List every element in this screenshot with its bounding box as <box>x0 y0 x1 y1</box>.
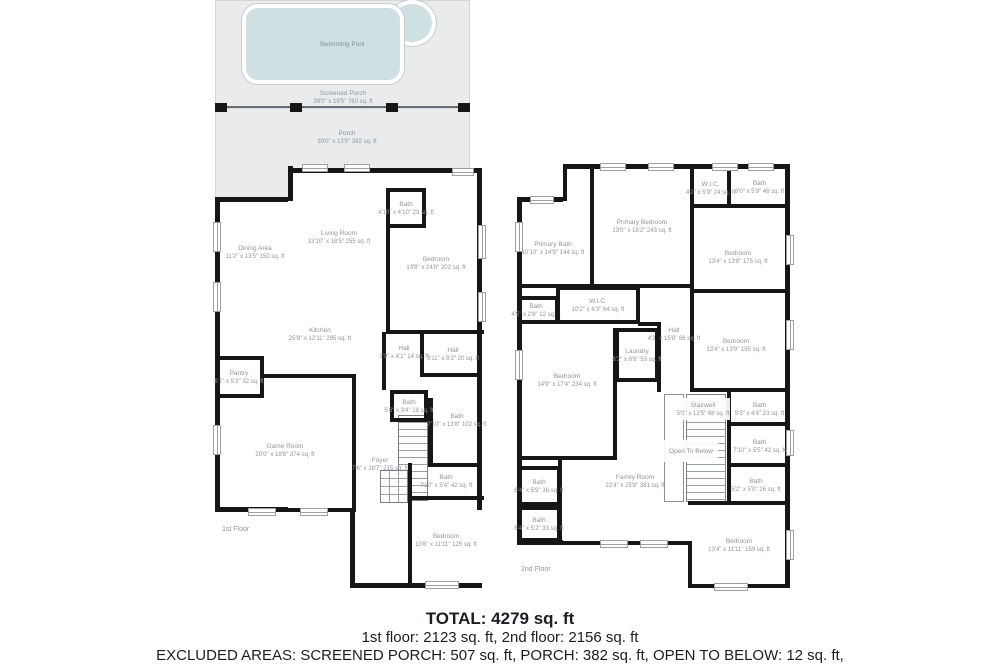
room-bath: Bath7'10" x 5'5" 42 sq. ft <box>731 428 788 464</box>
window <box>248 508 276 516</box>
room-bath: Bath4'5" x 2'8" 12 sq. ft <box>517 296 559 324</box>
window <box>530 196 554 204</box>
room-dims-label: 7'10" x 5'4" 42 sq. ft <box>420 482 473 490</box>
room-dims-label: 8'0" x 5'9" 46 sq. ft <box>735 188 784 196</box>
room-dims-label: 7'10" x 5'5" 42 sq. ft <box>733 447 786 455</box>
room-name-label: Primary Bedroom <box>617 218 668 227</box>
screened-porch-label: Screened Porch 39'0" x 19'5" 760 sq. ft <box>293 86 393 108</box>
room-dims-label: 4'2" x 5'9" 24 sq. ft <box>686 189 735 197</box>
porch-post <box>215 103 227 112</box>
room-bedroom: Bedroom13'4" x 13'9" 185 sq. ft <box>690 297 782 393</box>
wall-segment <box>563 164 567 201</box>
room-dims-label: 3'9" x 4'1" 14 sq. ft <box>379 353 428 361</box>
room-name-label: Game Room <box>267 442 304 451</box>
room-dims-label: 13'0" x 16'2" 243 sq. ft <box>612 227 671 235</box>
room-family-room: Family Room22'4" x 25'8" 381 sq. ft <box>572 424 698 538</box>
room-stairwell: Stairwell5'0" x 13'5" 68 sq. ft <box>676 398 730 420</box>
room-name-label: W.I.C. <box>589 297 607 306</box>
room-bedroom: Bedroom10'6" x 11'11" 125 sq. ft <box>412 500 480 580</box>
window <box>478 292 486 322</box>
porch-name: Porch <box>339 129 356 138</box>
room-bath: Bath6'4" x 5'2" 33 sq. ft <box>517 506 561 542</box>
room-name-label: Foyer <box>372 456 389 465</box>
window <box>452 168 474 176</box>
room-hall: Hall3'9" x 4'1" 14 sq. ft <box>386 332 422 372</box>
room-name-label: Laundry <box>625 347 649 356</box>
room-hall: Hall3'11" x 5'2" 20 sq. ft <box>424 332 482 376</box>
porch-label: Porch 39'0" x 13'5" 382 sq. ft <box>297 126 397 148</box>
room-dims-label: 5'3" x 4'4" 23 sq. ft <box>735 410 784 418</box>
window <box>786 320 794 350</box>
room-bath: Bath7'10" x 5'4" 42 sq. ft <box>412 466 480 496</box>
room-name-label: W.I.C. <box>702 180 720 189</box>
room-dims-label: 13'4" x 13'9" 175 sq. ft <box>708 258 767 266</box>
room-dims-label: 4'5" x 2'8" 12 sq. ft <box>511 311 560 319</box>
room-bedroom: Bedroom13'4" x 13'9" 175 sq. ft <box>690 214 786 300</box>
first-floor-caption: 1st Floor <box>222 526 249 533</box>
window <box>213 282 221 312</box>
room-dims-label: 5'6" x 3'4" 18 sq. ft <box>384 407 433 415</box>
room-name-label: Bedroom <box>723 337 749 346</box>
room-dims-label: 14'9" x 17'4" 234 sq. ft <box>537 381 596 389</box>
room-dims-label: 22'4" x 25'8" 381 sq. ft <box>605 482 664 490</box>
room-hall: Hall4'3" x 15'8" 66 sq. ft <box>657 316 691 352</box>
room-name-label: Bath <box>450 412 463 421</box>
room-living-room: Living Room13'10" x 18'5" 255 sq. ft <box>293 172 385 302</box>
room-dims-label: 13'4" x 11'11" 159 sq. ft <box>708 546 770 554</box>
room-bedroom: Bedroom13'4" x 11'11" 159 sq. ft <box>690 505 788 585</box>
room-name-label: Bedroom <box>433 532 459 541</box>
room-dims-label: 25'8" x 12'11" 295 sq. ft <box>289 335 351 343</box>
room-name-label: Bedroom <box>423 255 449 264</box>
window <box>640 540 668 548</box>
room-name-label: Stairwell <box>691 401 716 410</box>
room-name-label: Bedroom <box>554 372 580 381</box>
window <box>425 581 459 589</box>
room-w-i-c: W.I.C.10'2" x 6'3" 64 sq. ft <box>556 286 640 324</box>
room-dims-label: 3'11" x 5'2" 20 sq. ft <box>427 355 479 363</box>
room-pantry: Pantry6'1" x 5'3" 32 sq. ft <box>218 356 264 398</box>
window <box>478 225 486 259</box>
room-name-label: Bath <box>402 398 415 407</box>
room-name-label: Bath <box>749 477 762 486</box>
room-dims-label: 10'10" x 14'9" 144 sq. ft <box>522 249 585 257</box>
window <box>302 164 328 172</box>
room-name-label: Living Room <box>321 229 357 238</box>
room-name-label: Bath <box>753 438 766 447</box>
porch-post <box>458 103 470 112</box>
summary-total: TOTAL: 4279 sq. ft <box>0 608 1000 629</box>
room-dims-label: 6'4" x 5'9" 36 sq. ft <box>514 487 563 495</box>
window <box>515 350 523 380</box>
room-bath: Bath6'4" x 5'9" 36 sq. ft <box>517 466 561 506</box>
room-dims-label: 7'10" x 13'8" 102 sq. ft <box>427 421 486 429</box>
room-name-label: Dining Area <box>238 244 272 253</box>
room-name-label: Primary Bath <box>534 240 572 249</box>
room-name-label: Kitchen <box>309 326 331 335</box>
room-dims-label: 10'6" x 11'11" 125 sq. ft <box>415 541 477 549</box>
room-bath: Bath5'3" x 4'4" 23 sq. ft <box>731 394 788 424</box>
room-name-label: Bath <box>532 478 545 487</box>
room-name-label: Bath <box>399 200 412 209</box>
summary-excluded-1: EXCLUDED AREAS: SCREENED PORCH: 507 sq. … <box>0 647 1000 665</box>
screened-porch-dims: 39'0" x 19'5" 760 sq. ft <box>313 98 372 106</box>
room-bedroom: Bedroom13'8" x 24'8" 202 sq. ft <box>390 215 482 311</box>
room-name-label: Bath <box>753 401 766 410</box>
room-dims-label: 13'4" x 13'9" 185 sq. ft <box>706 346 765 354</box>
room-name-label: Hall <box>447 346 458 355</box>
area-summary: TOTAL: 4279 sq. ft 1st floor: 2123 sq. f… <box>0 608 1000 667</box>
room-name-label: Bath <box>439 473 452 482</box>
room-laundry: Laundry6'2" x 8'6" 53 sq. ft <box>615 328 659 382</box>
room-name-label: Bath <box>529 302 542 311</box>
room-dims-label: 6'1" x 5'3" 32 sq. ft <box>214 378 263 386</box>
window <box>748 163 774 171</box>
room-dims-label: 20'0" x 18'8" 374 sq. ft <box>255 451 314 459</box>
window <box>600 540 628 548</box>
room-name-label: Pantry <box>230 369 249 378</box>
room-dims-label: 6'2" x 8'6" 53 sq. ft <box>612 356 661 364</box>
window <box>213 222 221 252</box>
room-name-label: Family Room <box>616 473 654 482</box>
window <box>515 222 523 252</box>
room-dims-label: 13'10" x 18'5" 255 sq. ft <box>308 238 371 246</box>
room-dims-label: 10'2" x 6'3" 64 sq. ft <box>572 306 625 314</box>
room-bath: Bath5'2" x 5'0" 26 sq. ft <box>731 467 781 503</box>
room-primary-bath: Primary Bath10'10" x 14'9" 144 sq. ft <box>517 206 589 290</box>
window <box>213 425 221 455</box>
window <box>714 583 748 591</box>
room-name-label: Bath <box>532 516 545 525</box>
second-floor-caption: 2nd Floor <box>521 566 551 573</box>
window <box>712 163 738 171</box>
screened-porch-name: Screened Porch <box>320 89 367 98</box>
room-dims-label: 11'2" x 13'5" 150 sq. ft <box>226 253 285 261</box>
window <box>786 530 794 560</box>
room-name-label: Hall <box>668 326 679 335</box>
floor-plan-canvas: Swimming Pool Screened Porch 39'0" x 19'… <box>0 0 1000 667</box>
room-name-label: Bath <box>753 179 766 188</box>
window <box>648 163 674 171</box>
room-dims-label: 7'6" x 28'7" 215 sq. ft <box>352 465 408 473</box>
room-dims-label: 6'4" x 5'2" 33 sq. ft <box>514 525 563 533</box>
window <box>344 164 370 172</box>
window <box>786 235 794 265</box>
window <box>300 508 328 516</box>
window <box>786 430 794 456</box>
room-bedroom: Bedroom14'9" x 17'4" 234 sq. ft <box>519 330 615 430</box>
room-dining-area: Dining Area11'2" x 13'5" 150 sq. ft <box>218 200 292 305</box>
summary-floors: 1st floor: 2123 sq. ft, 2nd floor: 2156 … <box>0 629 1000 647</box>
room-w-i-c: W.I.C.4'2" x 5'9" 24 sq. ft <box>694 170 727 206</box>
wall-segment <box>262 374 354 378</box>
room-bath: Bath8'0" x 5'9" 46 sq. ft <box>731 170 788 204</box>
room-game-room: Game Room20'0" x 18'8" 374 sq. ft <box>218 400 352 500</box>
room-dims-label: 5'0" x 13'5" 68 sq. ft <box>677 410 730 418</box>
swimming-pool-label: Swimming Pool <box>292 38 392 52</box>
room-name-label: Hall <box>398 344 409 353</box>
room-foyer: Foyer7'6" x 28'7" 215 sq. ft <box>354 430 406 498</box>
room-dims-label: 13'8" x 24'8" 202 sq. ft <box>406 264 465 272</box>
room-name-label: Bedroom <box>725 249 751 258</box>
room-dims-label: 5'2" x 5'0" 26 sq. ft <box>731 486 780 494</box>
room-bath: Bath7'10" x 13'8" 102 sq. ft <box>432 377 482 463</box>
room-bath: Bath5'6" x 3'4" 18 sq. ft <box>390 390 428 422</box>
room-primary-bedroom: Primary Bedroom13'0" x 16'2" 243 sq. ft <box>594 168 690 284</box>
room-name-label: Bedroom <box>726 537 752 546</box>
porch-dims: 39'0" x 13'5" 382 sq. ft <box>317 138 376 146</box>
window <box>600 163 626 171</box>
